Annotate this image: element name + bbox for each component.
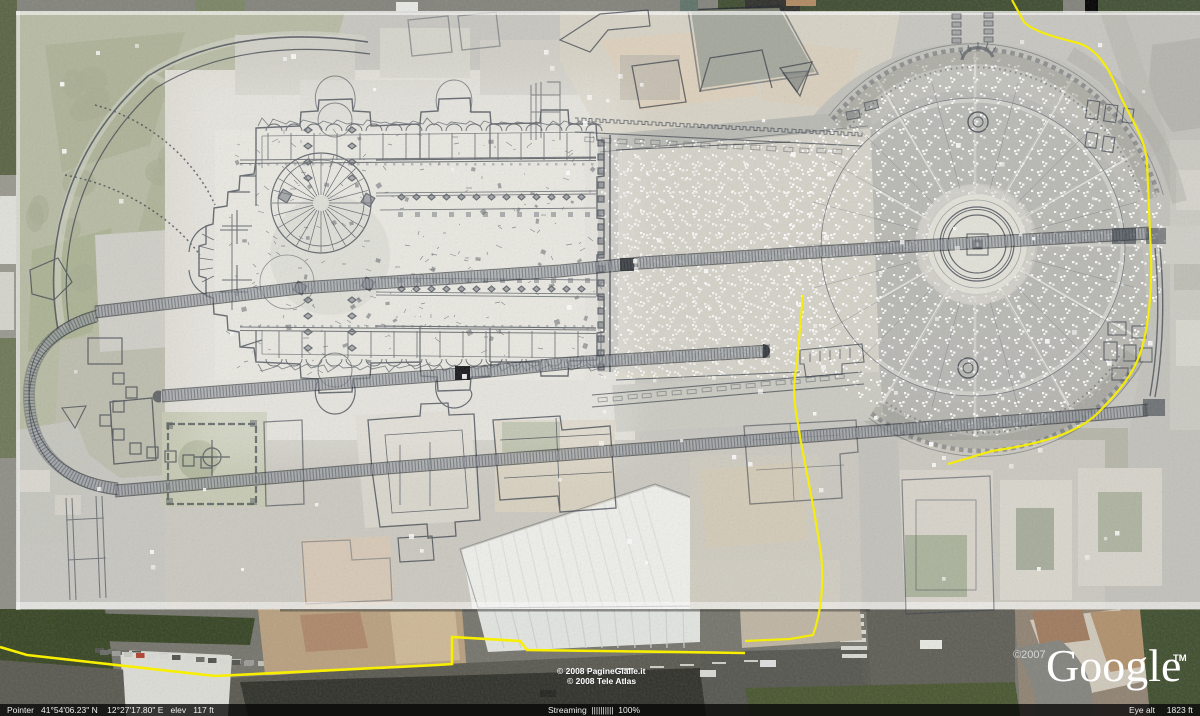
svg-text:Streaming |||||||||| 100%: Streaming |||||||||| 100%: [548, 705, 640, 715]
svg-text:© 2008 Tele Atlas: © 2008 Tele Atlas: [567, 676, 636, 686]
svg-text:TM: TM: [1173, 653, 1187, 664]
svg-text:©2007: ©2007: [1013, 649, 1046, 661]
svg-text:Pointer 41°54'06.23" N 12: Pointer 41°54'06.23" N 12°27'17.80" E el…: [7, 705, 214, 715]
svg-text:Google: Google: [1046, 640, 1181, 691]
svg-text:© 2008 PagineGialle.it: © 2008 PagineGialle.it: [557, 666, 646, 676]
svg-text:Eye alt 1823 ft: Eye alt 1823 ft: [1129, 705, 1193, 715]
